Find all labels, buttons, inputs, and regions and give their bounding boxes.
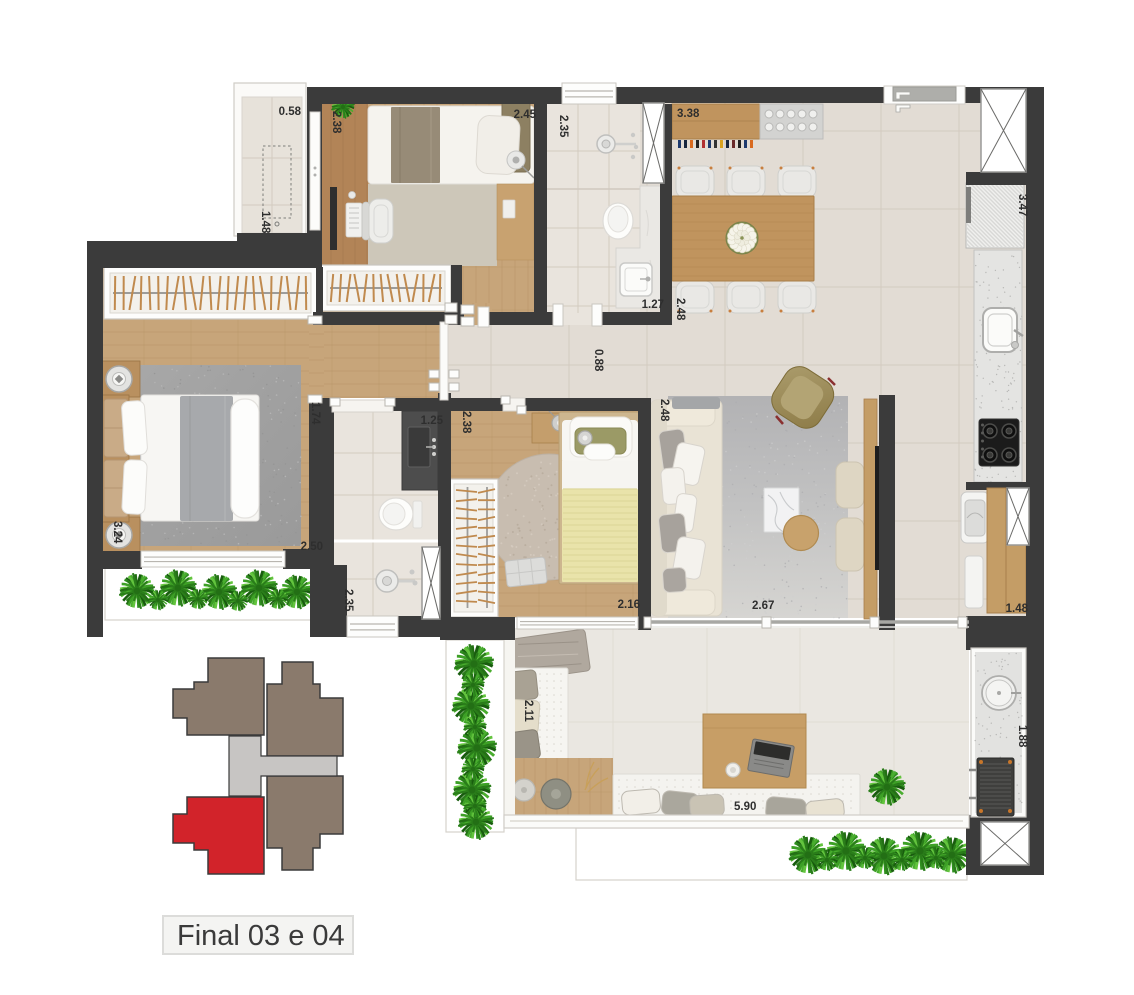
svg-text:2.11: 2.11	[522, 700, 534, 722]
svg-text:2.38: 2.38	[460, 411, 472, 434]
svg-text:3.24: 3.24	[111, 521, 123, 544]
svg-text:1.48: 1.48	[259, 211, 271, 234]
svg-text:1.74: 1.74	[309, 402, 321, 425]
svg-text:2.67: 2.67	[752, 600, 774, 612]
svg-text:2.16: 2.16	[618, 599, 640, 611]
svg-text:2.50: 2.50	[301, 541, 323, 553]
svg-text:1.48: 1.48	[1006, 603, 1029, 615]
svg-text:2.45: 2.45	[514, 109, 537, 121]
svg-text:5.90: 5.90	[734, 801, 756, 813]
svg-text:2.38: 2.38	[330, 111, 342, 134]
svg-text:Final 03 e 04: Final 03 e 04	[177, 920, 345, 952]
svg-text:3.38: 3.38	[677, 108, 700, 120]
svg-text:2.35: 2.35	[342, 589, 354, 612]
svg-text:0.58: 0.58	[279, 106, 302, 118]
svg-text:2.48: 2.48	[674, 298, 686, 321]
svg-text:3.47: 3.47	[1016, 194, 1028, 216]
svg-text:2.48: 2.48	[658, 399, 670, 422]
svg-text:2.35: 2.35	[557, 115, 569, 138]
svg-text:1.27: 1.27	[642, 299, 664, 311]
svg-text:1.25: 1.25	[421, 415, 444, 427]
svg-text:0.88: 0.88	[592, 349, 604, 372]
svg-text:1.88: 1.88	[1016, 725, 1028, 748]
